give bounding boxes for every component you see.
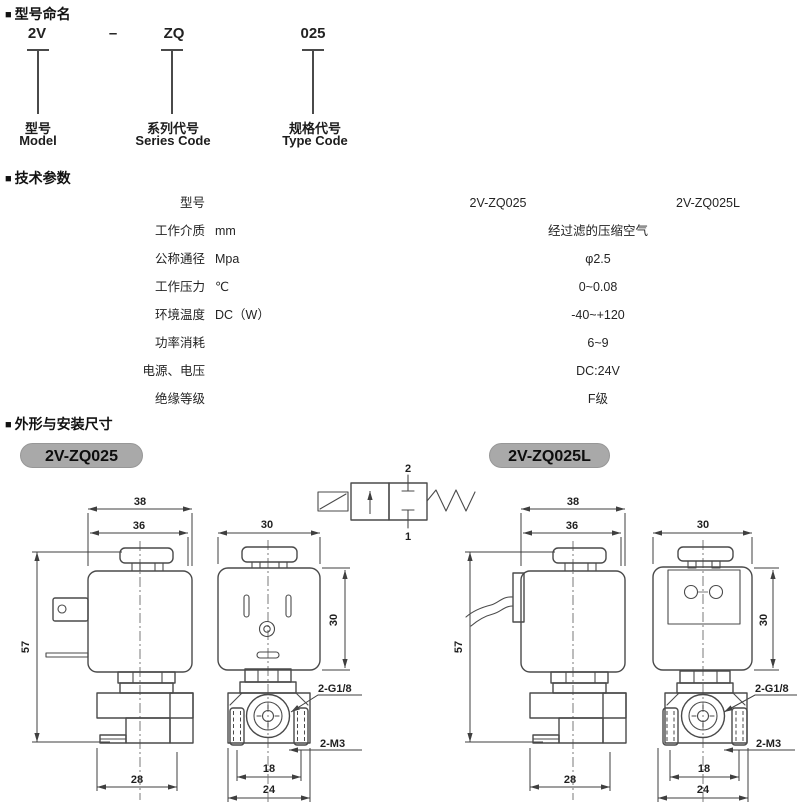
right-side-view-drawing: 38 36 57 28 [453,496,626,800]
manual-override-cap [120,548,173,563]
valve-body [228,693,310,745]
port-2-label: 2 [405,463,411,475]
valve-body [97,693,193,743]
hex-nut [680,671,730,683]
manual-override-cap [242,547,297,562]
technical-drawings: 2 1 38 36 57 28 [0,0,800,805]
right-front-view-drawing: 30 30 18 24 2-G1/8 2-M3 [653,519,797,803]
manual-override-cap [553,548,606,563]
port-leader-line [724,695,797,712]
cover-screw [260,622,275,637]
lead-wire [466,597,513,617]
spring-symbol [427,490,475,511]
left-front-view-drawing: 30 30 18 24 2-G1/8 2-M3 [218,519,362,803]
valve-body [663,693,747,745]
vent-slot [286,595,291,617]
port-leader-line [291,695,362,712]
mount-thread-label: 2-M3 [320,738,345,750]
dim-18: 18 [263,763,275,775]
mounting-tab [732,708,747,745]
valve-schematic-symbol: 2 1 [318,463,475,543]
dim-24: 24 [263,784,276,796]
dimension-lines: 38 36 57 28 [453,496,625,791]
terminal-pin [46,653,88,657]
dim-36: 36 [566,520,578,532]
mounting-tab [294,708,308,745]
mount-thread-label: 2-M3 [756,738,781,750]
mounting-tab [230,708,244,745]
dim-30-top: 30 [697,519,709,531]
dim-38: 38 [134,496,146,508]
din-connector-face [668,570,740,624]
left-side-view-drawing: 38 36 57 28 [20,496,193,800]
dim-36: 36 [133,520,145,532]
datasheet-page: ■型号命名 2V – ZQ 025 型号 Model 系列代号 Series C… [0,0,800,805]
hex-nut [551,672,608,683]
coil-body [218,568,320,670]
cable-connector-block [513,573,524,622]
dim-28: 28 [564,774,576,786]
dim-28: 28 [131,774,143,786]
port-1-label: 1 [405,531,411,543]
manual-override-cap [678,547,733,561]
hex-nut [118,672,175,683]
dim-57: 57 [453,641,465,653]
lead-wire [471,606,513,626]
connector-pin-hole [685,586,698,599]
dim-30-top: 30 [261,519,273,531]
vent-slot [244,595,249,617]
dim-30-right: 30 [328,614,340,626]
dim-18: 18 [698,763,710,775]
dim-30-right: 30 [758,614,770,626]
dim-57: 57 [20,641,32,653]
connector-pin-hole [710,586,723,599]
dim-38: 38 [567,496,579,508]
valve-body [530,693,626,743]
dimension-lines: 38 36 57 28 [20,496,192,791]
port-thread-label: 2-G1/8 [755,683,789,695]
port-thread-label: 2-G1/8 [318,683,352,695]
